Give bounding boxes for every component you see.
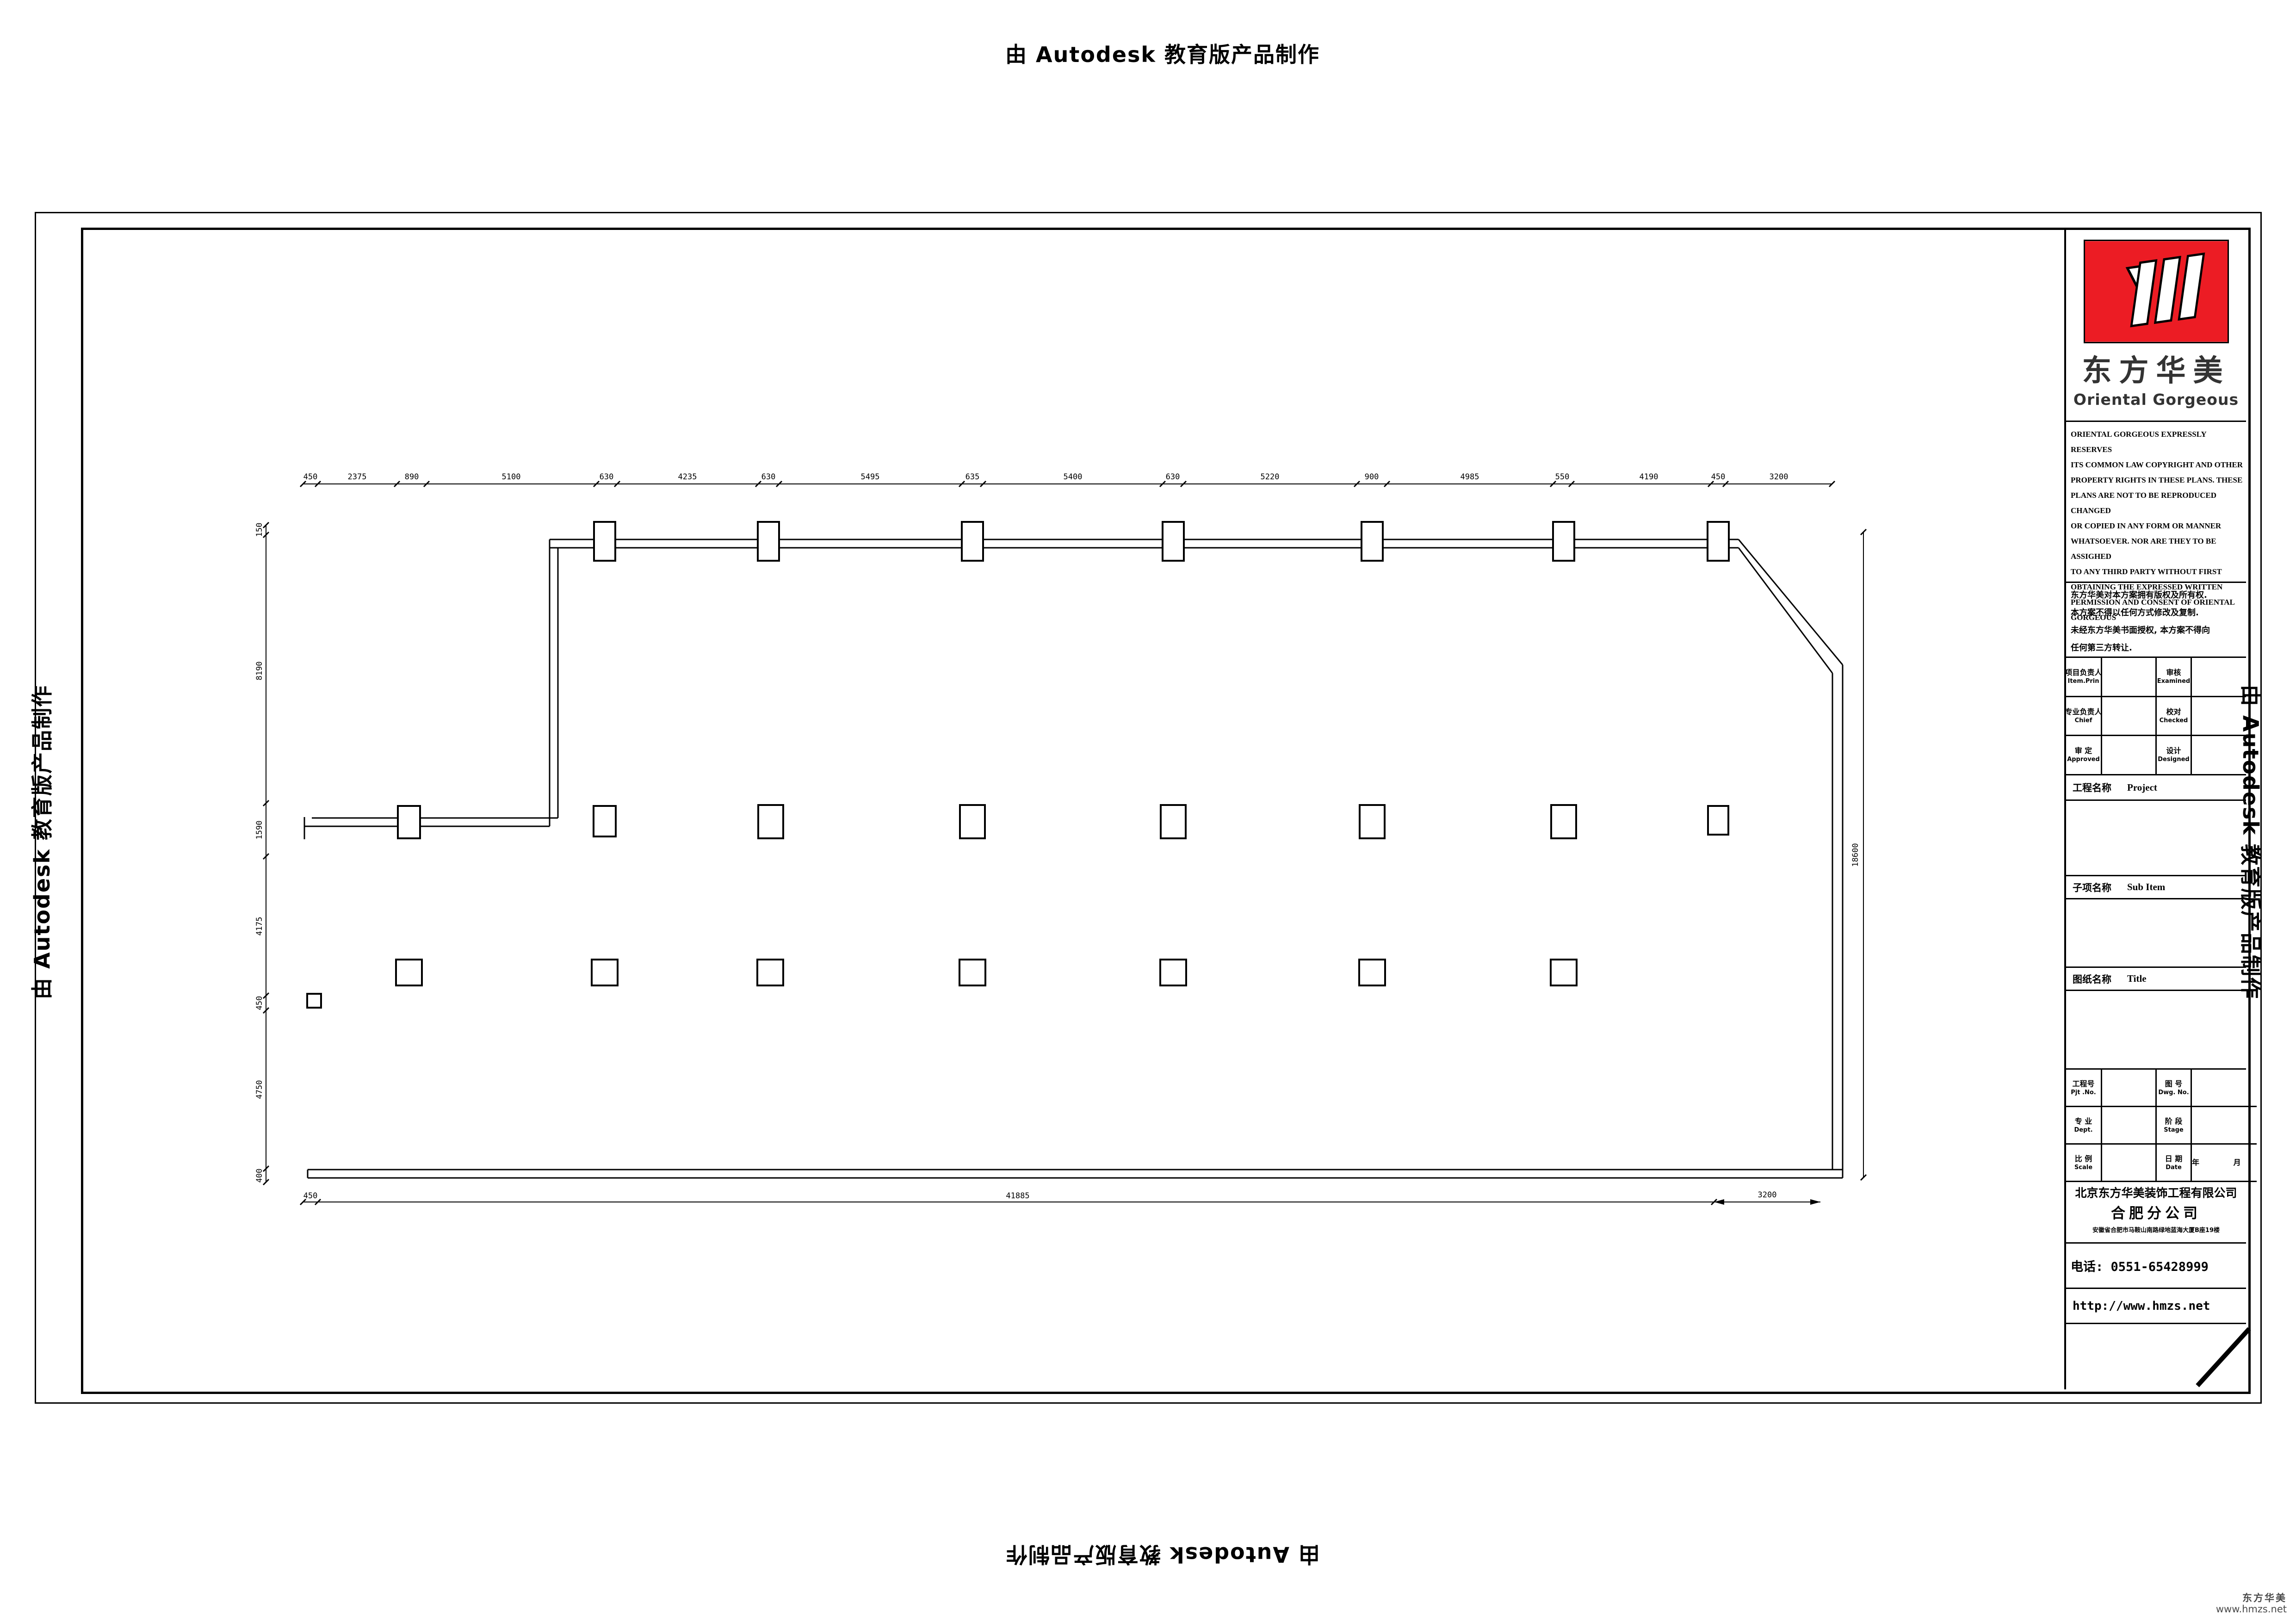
svg-text:630: 630 (600, 472, 614, 482)
svg-text:4175: 4175 (255, 917, 264, 936)
label-chief: 专业负责人Chief (2066, 697, 2102, 737)
brand-name-cn: 东方华美 (2082, 347, 2230, 390)
svg-text:635: 635 (965, 472, 980, 482)
svg-text:400: 400 (255, 1169, 264, 1183)
subitem-name-value (2066, 899, 2246, 968)
svg-text:450: 450 (1711, 472, 1726, 482)
project-name-value (2066, 801, 2246, 876)
label-stage: 阶 段Stage (2157, 1107, 2192, 1145)
svg-text:3200: 3200 (1758, 1190, 1777, 1200)
svg-text:4750: 4750 (255, 1080, 264, 1099)
value-drawing-no (2192, 1070, 2257, 1107)
svg-text:630: 630 (1166, 472, 1180, 482)
svg-text:2375: 2375 (348, 472, 367, 482)
titleblock-tail (2066, 1324, 2246, 1388)
dimension-lines (263, 481, 1866, 1205)
value-examined (2192, 658, 2246, 697)
brand-name-en: Oriental Gorgeous (2073, 390, 2239, 409)
footer-brand-watermark: 东方华美 www.hmzs.net (2216, 1592, 2287, 1615)
svg-text:900: 900 (1365, 472, 1379, 482)
value-dept (2102, 1107, 2157, 1145)
label-dept: 专 业Dept. (2066, 1107, 2102, 1145)
footer-brand: 东方华美 (2216, 1592, 2287, 1604)
svg-text:4190: 4190 (1640, 472, 1659, 482)
svg-text:550: 550 (1555, 472, 1570, 482)
label-project-no: 工程号Pjt .No. (2066, 1070, 2102, 1107)
svg-text:450: 450 (303, 1191, 318, 1201)
oriental-gorgeous-logo (2084, 240, 2229, 343)
project-name-header: 工程名称Project (2066, 775, 2246, 801)
value-stage (2192, 1107, 2257, 1145)
floor-plan-drawing: 450 2375 890 5100 630 4235 630 5495 635 … (0, 0, 2296, 1623)
company-name: 北京东方华美装饰工程有限公司 (2066, 1184, 2246, 1201)
svg-text:5495: 5495 (861, 472, 880, 482)
subitem-name-header: 子项名称Sub Item (2066, 876, 2246, 899)
label-approved: 审 定Approved (2066, 736, 2102, 775)
copyright-text-cn: 东方华美对本方案拥有版权及所有权. 本方案不得以任何方式修改及复制. 未经东方华… (2066, 583, 2246, 658)
footer-site: www.hmzs.net (2216, 1604, 2287, 1615)
company-block: 北京东方华美装饰工程有限公司 合肥分公司 安徽省合肥市马鞍山南路绿地蓝海大厦B座… (2066, 1182, 2246, 1244)
svg-text:1590: 1590 (255, 821, 264, 840)
label-examined: 审核Examined (2157, 658, 2192, 697)
svg-text:890: 890 (405, 472, 419, 482)
value-designed (2192, 736, 2246, 775)
value-checked (2192, 697, 2246, 737)
svg-text:4985: 4985 (1461, 472, 1479, 482)
company-phone: 电话: 0551-65428999 (2066, 1244, 2246, 1289)
meta-table: 工程号Pjt .No. 图 号Dwg. No. 专 业Dept. 阶 段Stag… (2066, 1070, 2246, 1182)
wall-lines (304, 539, 1843, 1178)
value-project-no (2102, 1070, 2157, 1107)
column-grid (307, 522, 1729, 1008)
svg-text:4235: 4235 (678, 472, 697, 482)
company-address: 安徽省合肥市马鞍山南路绿地蓝海大厦B座19楼 (2066, 1225, 2246, 1234)
label-designed: 设计Designed (2157, 736, 2192, 775)
personnel-table: 项目负责人Item.Prin 审核Examined 专业负责人Chief 校对C… (2066, 658, 2246, 775)
value-chief (2102, 697, 2157, 737)
label-item-principal: 项目负责人Item.Prin (2066, 658, 2102, 697)
value-date: 年 月 (2192, 1145, 2257, 1182)
label-date: 日 期Date (2157, 1145, 2192, 1182)
copyright-text-en: ORIENTAL GORGEOUS EXPRESSLY RESERVES ITS… (2066, 422, 2246, 583)
title-block: 东方华美 Oriental Gorgeous ORIENTAL GORGEOUS… (2064, 228, 2246, 1389)
logo-box: 东方华美 Oriental Gorgeous (2066, 228, 2246, 422)
dimension-labels: 450 2375 890 5100 630 4235 630 5495 635 … (255, 472, 1860, 1201)
svg-text:41885: 41885 (1006, 1191, 1029, 1201)
drawing-title-value (2066, 991, 2246, 1070)
svg-text:18600: 18600 (1851, 843, 1860, 867)
drawing-title-header: 图纸名称Title (2066, 968, 2246, 991)
company-branch: 合肥分公司 (2066, 1202, 2246, 1222)
svg-text:5100: 5100 (502, 472, 521, 482)
svg-text:630: 630 (761, 472, 776, 482)
svg-text:5220: 5220 (1261, 472, 1280, 482)
svg-text:150: 150 (255, 523, 264, 537)
label-checked: 校对Checked (2157, 697, 2192, 737)
value-item-principal (2102, 658, 2157, 697)
svg-text:450: 450 (303, 472, 318, 482)
svg-text:8190: 8190 (255, 662, 264, 681)
company-website: http://www.hmzs.net (2066, 1289, 2246, 1324)
value-approved (2102, 736, 2157, 775)
svg-text:3200: 3200 (1770, 472, 1789, 482)
label-scale: 比 例Scale (2066, 1145, 2102, 1182)
svg-text:5400: 5400 (1064, 472, 1083, 482)
svg-text:450: 450 (255, 996, 264, 1010)
value-scale (2102, 1145, 2157, 1182)
label-drawing-no: 图 号Dwg. No. (2157, 1070, 2192, 1107)
